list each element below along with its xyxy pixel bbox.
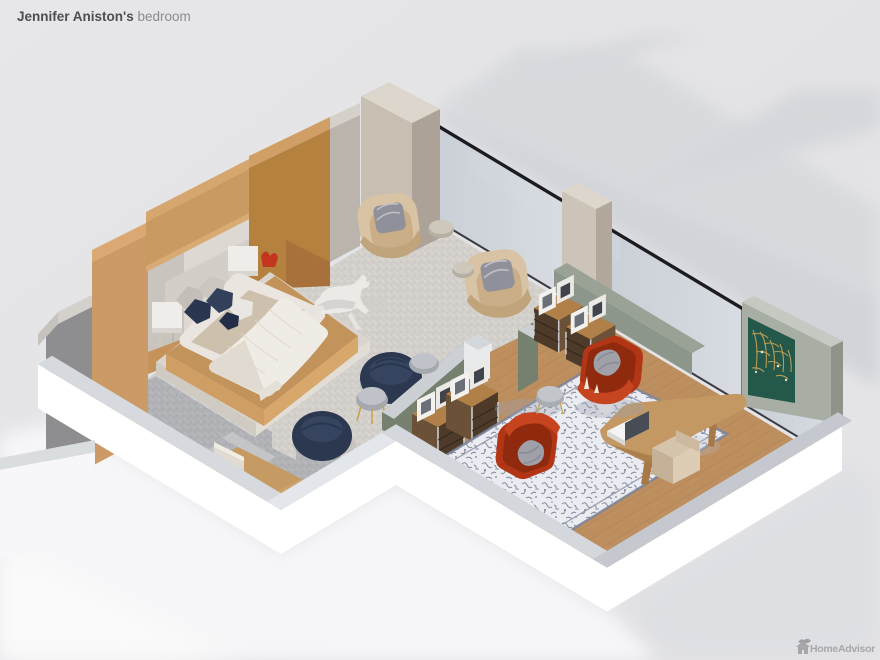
svg-text:Jennifer Aniston's bedroom: Jennifer Aniston's bedroom [17,9,191,24]
svg-text:HomeAdvisor: HomeAdvisor [810,643,875,655]
